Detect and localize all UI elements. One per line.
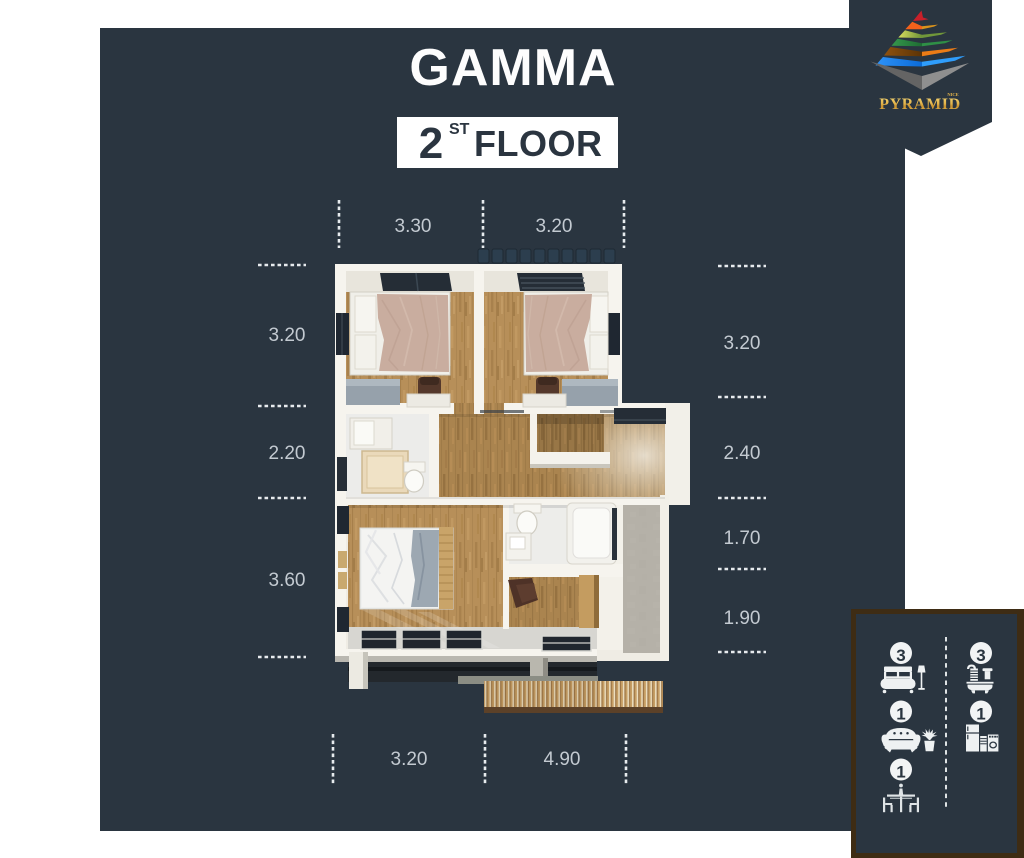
svg-text:3.20: 3.20	[269, 325, 306, 346]
svg-text:1.90: 1.90	[724, 608, 761, 629]
svg-text:2.40: 2.40	[724, 443, 761, 464]
svg-text:FLOOR: FLOOR	[474, 123, 602, 164]
svg-text:4.90: 4.90	[544, 749, 581, 770]
svg-text:ST: ST	[449, 121, 470, 138]
svg-text:2.20: 2.20	[269, 443, 306, 464]
svg-text:3: 3	[976, 646, 985, 665]
svg-text:3.20: 3.20	[536, 216, 573, 237]
svg-text:GAMMA: GAMMA	[409, 39, 616, 97]
svg-text:3: 3	[896, 646, 905, 665]
svg-text:3.20: 3.20	[724, 333, 761, 354]
svg-text:1: 1	[896, 763, 905, 782]
svg-text:3.20: 3.20	[391, 749, 428, 770]
svg-text:3.60: 3.60	[269, 570, 306, 591]
svg-text:1: 1	[896, 705, 905, 724]
svg-text:3.30: 3.30	[395, 216, 432, 237]
svg-text:1.70: 1.70	[724, 528, 761, 549]
svg-text:NICE: NICE	[947, 92, 958, 97]
svg-text:PYRAMID: PYRAMID	[879, 96, 961, 113]
svg-text:2: 2	[419, 119, 443, 168]
svg-text:1: 1	[976, 705, 985, 724]
